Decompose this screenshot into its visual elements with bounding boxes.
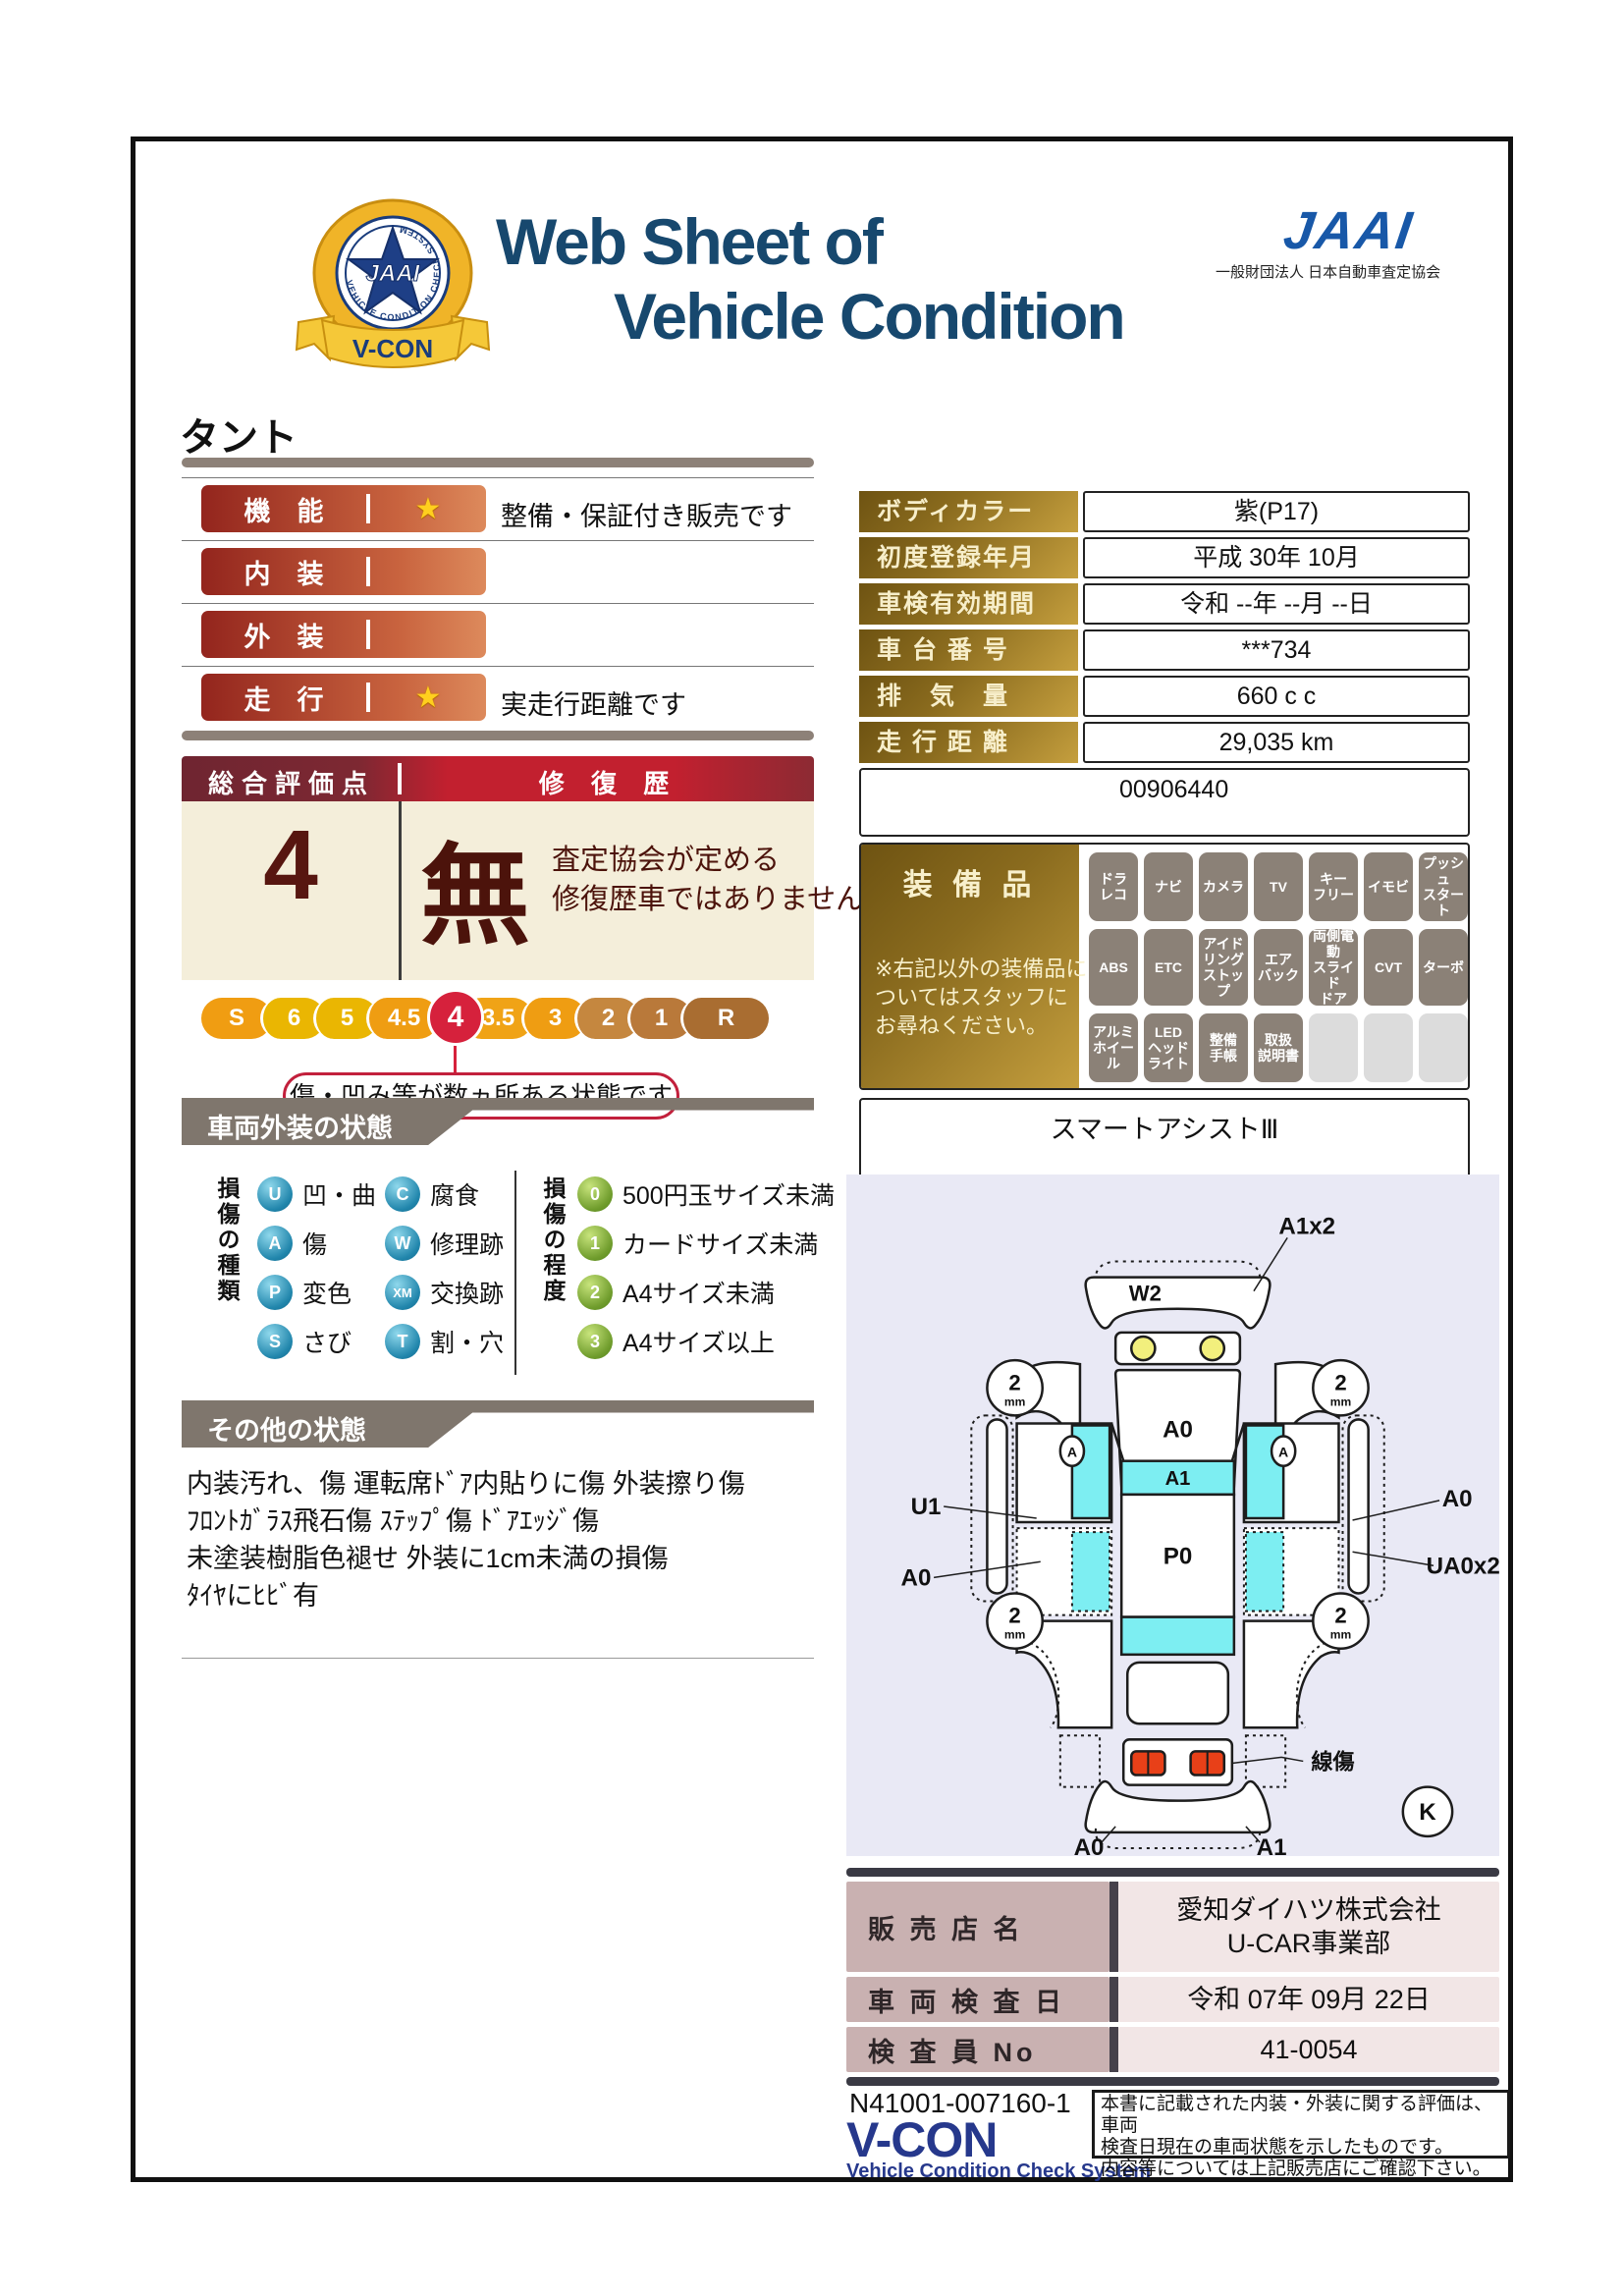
bar-divider bbox=[366, 620, 370, 649]
info-value-chassis: ***734 bbox=[1083, 629, 1470, 671]
equipment-note: ※右記以外の装備品に ついてはスタッフに お尋ねください。 bbox=[875, 955, 1087, 1040]
damage-label: 修理跡 bbox=[430, 1226, 504, 1261]
dealer-divider bbox=[1109, 1977, 1118, 2022]
rule bbox=[182, 603, 814, 604]
damage-code-u: U bbox=[257, 1176, 293, 1212]
degree-code-0: 0 bbox=[577, 1176, 613, 1212]
legend-item: A 傷 bbox=[257, 1226, 327, 1261]
damage-label: 変色 bbox=[302, 1275, 352, 1310]
rule bbox=[182, 477, 814, 478]
rule bbox=[182, 540, 814, 541]
equipment-badge: エア バック bbox=[1254, 929, 1303, 1006]
jaai-logo: JAAI bbox=[1280, 200, 1418, 261]
damage-code-t: T bbox=[385, 1324, 420, 1359]
damage-type-label: 損傷の種類 bbox=[210, 1176, 243, 1334]
smart-assist-label: スマートアシストⅢ bbox=[859, 1108, 1470, 1146]
dealer-divider bbox=[1109, 2027, 1118, 2072]
page-title-line1: Web Sheet of bbox=[496, 204, 882, 279]
vcon-emblem-icon: VEHICLE CONDITION CHECK SYSTEM JAAI V-CO… bbox=[295, 194, 491, 386]
info-label-bodycolor: ボディカラー bbox=[859, 491, 1078, 532]
wheel-gap-unit: mm bbox=[1330, 1628, 1351, 1642]
info-label-mileage: 走 行 距 離 bbox=[859, 722, 1078, 763]
legend-item: 1 カードサイズ未満 bbox=[577, 1226, 818, 1261]
equipment-badge: TV bbox=[1254, 852, 1303, 921]
damage-code-a: A bbox=[257, 1226, 293, 1261]
section-title: その他の状態 bbox=[207, 1416, 366, 1446]
wheel-gap-unit: mm bbox=[1004, 1628, 1025, 1642]
wheel-gap-value: 2 bbox=[1334, 1370, 1346, 1394]
equipment-badge: 両側電動 スライド ドア bbox=[1309, 929, 1358, 1006]
rule bbox=[182, 1658, 814, 1659]
rating-label: 機 能 bbox=[201, 490, 366, 528]
damage-diagram: A1x2 W2 A0 A1 P0 U1 A0 A0 UA0x2 線傷 A0 A1… bbox=[846, 1175, 1499, 1856]
equipment-badge: カメラ bbox=[1199, 852, 1248, 921]
damage-code-p: P bbox=[257, 1275, 293, 1310]
legend-item: P 変色 bbox=[257, 1275, 352, 1310]
wheel-gap-unit: mm bbox=[1004, 1394, 1025, 1408]
disclaimer-box: 本書に記載された内装・外装に関する評価は、車両 検査日現在の車両状態を示したもの… bbox=[1092, 2090, 1510, 2159]
grade-pill-r: R bbox=[680, 998, 769, 1039]
label-bumper-a0: A0 bbox=[1074, 1834, 1105, 1856]
bar-divider bbox=[366, 557, 370, 586]
legend-item: 3 A4サイズ以上 bbox=[577, 1324, 775, 1359]
info-value-mileage: 29,035 km bbox=[1083, 722, 1470, 763]
repair-history-title: 修 復 歴 bbox=[491, 764, 727, 800]
repair-history-value: 無 bbox=[420, 807, 530, 966]
dealer-name-label: 販 売 店 名 bbox=[846, 1882, 1109, 1972]
rating-note: 実走行距離です bbox=[501, 683, 686, 722]
equipment-badge: CVT bbox=[1364, 929, 1413, 1006]
equipment-badge-empty bbox=[1364, 1013, 1413, 1082]
equipment-badge: ナビ bbox=[1144, 852, 1193, 921]
degree-code-3: 3 bbox=[577, 1324, 613, 1359]
star-icon: ★ bbox=[370, 492, 486, 526]
info-value-firstreg: 平成 30年 10月 bbox=[1083, 537, 1470, 578]
body-divider bbox=[399, 801, 402, 980]
grade-pill-4-selected: 4 bbox=[427, 989, 484, 1046]
degree-label: A4サイズ未満 bbox=[622, 1275, 775, 1310]
vehicle-name: タント bbox=[180, 406, 298, 463]
equipment-badge-empty bbox=[1419, 1013, 1468, 1082]
equipment-badge: ETC bbox=[1144, 929, 1193, 1006]
legend-divider bbox=[514, 1171, 516, 1375]
dealer-table-top-bar bbox=[846, 1868, 1499, 1877]
label-windshield-a1: A1 bbox=[1165, 1468, 1191, 1490]
label-roof-p0: P0 bbox=[1163, 1543, 1193, 1569]
equipment-badge-empty bbox=[1309, 1013, 1358, 1082]
rating-note: 整備・保証付き販売です bbox=[501, 495, 792, 533]
rating-bar-interior: 内 装 bbox=[201, 548, 486, 595]
rating-label: 外 装 bbox=[201, 616, 366, 654]
rating-label: 内 装 bbox=[201, 553, 366, 591]
legend-item: T 割・穴 bbox=[385, 1324, 504, 1359]
callout-stem bbox=[454, 1043, 457, 1074]
inspector-no-value: 41-0054 bbox=[1118, 2027, 1499, 2072]
inspection-date-value: 令和 07年 09月 22日 bbox=[1118, 1977, 1499, 2022]
equipment-badge: イモビ bbox=[1364, 852, 1413, 921]
rule bbox=[182, 666, 814, 667]
jaai-subtitle: 一般財団法人 日本自動車査定協会 bbox=[1216, 261, 1440, 282]
equipment-badge: キー フリー bbox=[1309, 852, 1358, 921]
legend-item: XM 交換跡 bbox=[385, 1275, 504, 1310]
degree-label: カードサイズ未満 bbox=[622, 1226, 818, 1261]
svg-text:V-CON: V-CON bbox=[352, 334, 433, 363]
grade-scale: S 6 5 4.5 4 3.5 3 2 1 R bbox=[201, 998, 810, 1057]
overall-score-value: 4 bbox=[182, 809, 400, 922]
damage-label: 腐食 bbox=[430, 1176, 479, 1212]
info-label-inspection: 車検有効期間 bbox=[859, 583, 1078, 625]
damage-label: さび bbox=[302, 1324, 352, 1359]
damage-code-c: C bbox=[385, 1176, 420, 1212]
legend-item: 0 500円玉サイズ未満 bbox=[577, 1176, 835, 1212]
dealer-name-value: 愛知ダイハツ株式会社 U-CAR事業部 bbox=[1118, 1882, 1499, 1972]
degree-label: 500円玉サイズ未満 bbox=[622, 1176, 835, 1212]
vehicle-condition-sheet: VEHICLE CONDITION CHECK SYSTEM JAAI V-CO… bbox=[0, 0, 1623, 2296]
equipment-title: 装 備 品 bbox=[861, 860, 1079, 903]
equipment-grid: ドラ レコ ナビ カメラ TV キー フリー イモビ プッシュ スタート ABS… bbox=[1087, 845, 1470, 1088]
overall-score-title: 総合評価点 bbox=[208, 764, 375, 800]
label-bumper-a1: A1 bbox=[1257, 1834, 1287, 1856]
label-w2: W2 bbox=[1129, 1282, 1162, 1306]
rating-label: 走 行 bbox=[201, 679, 366, 717]
equipment-badge: アルミ ホイール bbox=[1089, 1013, 1138, 1082]
info-label-chassis: 車 台 番 号 bbox=[859, 629, 1078, 671]
info-value-bodycolor: 紫(P17) bbox=[1083, 491, 1470, 532]
repair-history-note: 査定協会が定める 修復歴車ではありません bbox=[552, 841, 864, 919]
equipment-badge: ドラ レコ bbox=[1089, 852, 1138, 921]
label-ua0x2: UA0x2 bbox=[1427, 1553, 1499, 1579]
star-icon: ★ bbox=[370, 681, 486, 715]
divider-top bbox=[182, 458, 814, 467]
svg-text:JAAI: JAAI bbox=[366, 260, 421, 287]
equipment-badge: ABS bbox=[1089, 929, 1138, 1006]
page-title-line2: Vehicle Condition bbox=[614, 279, 1124, 354]
dealer-table-bottom-bar bbox=[846, 2077, 1499, 2086]
damage-label: 凹・曲 bbox=[302, 1176, 376, 1212]
equipment-badge: 整備 手帳 bbox=[1199, 1013, 1248, 1082]
equipment-badge: 取扱 説明書 bbox=[1254, 1013, 1303, 1082]
degree-label: A4サイズ以上 bbox=[622, 1324, 775, 1359]
section-title: 車両外装の状態 bbox=[207, 1114, 393, 1143]
label-left-a0: A0 bbox=[901, 1564, 932, 1591]
damage-label: 交換跡 bbox=[430, 1275, 504, 1310]
legend-item: S さび bbox=[257, 1324, 352, 1359]
wheel-gap-value: 2 bbox=[1334, 1604, 1346, 1628]
rating-bar-function: 機 能 ★ bbox=[201, 485, 486, 532]
label-a-marker: A bbox=[1278, 1445, 1288, 1460]
header-divider bbox=[398, 763, 402, 794]
info-value-inspection: 令和 --年 --月 --日 bbox=[1083, 583, 1470, 625]
label-a1x2: A1x2 bbox=[1278, 1213, 1335, 1239]
label-right-a0: A0 bbox=[1442, 1486, 1473, 1512]
rating-bar-mileage: 走 行 ★ bbox=[201, 674, 486, 721]
wheel-gap-value: 2 bbox=[1008, 1370, 1020, 1394]
other-state-text: 内装汚れ、傷 運転席ﾄﾞｱ内貼りに傷 外装擦り傷 ﾌﾛﾝﾄｶﾞﾗｽ飛石傷 ｽﾃｯ… bbox=[187, 1465, 745, 1614]
dealer-divider bbox=[1109, 1882, 1118, 1972]
equipment-badge: プッシュ スタート bbox=[1419, 852, 1468, 921]
damage-code-xm: XM bbox=[385, 1275, 420, 1310]
label-line-scratch: 線傷 bbox=[1311, 1749, 1354, 1774]
damage-label: 傷 bbox=[302, 1226, 327, 1261]
equipment-badge: アイド リング ストップ bbox=[1199, 929, 1248, 1006]
legend-item: U 凹・曲 bbox=[257, 1176, 376, 1212]
damage-label: 割・穴 bbox=[430, 1324, 504, 1359]
degree-code-1: 1 bbox=[577, 1226, 613, 1261]
wheel-gap-unit: mm bbox=[1330, 1394, 1351, 1408]
legend-item: C 腐食 bbox=[385, 1176, 479, 1212]
divider-mid bbox=[182, 731, 814, 740]
inspector-no-label: 検 査 員 No bbox=[846, 2027, 1109, 2072]
damage-degree-label: 損傷の程度 bbox=[536, 1176, 569, 1334]
damage-code-w: W bbox=[385, 1226, 420, 1261]
label-a-marker: A bbox=[1067, 1445, 1077, 1460]
equipment-box: 装 備 品 ※右記以外の装備品に ついてはスタッフに お尋ねください。 ドラ レ… bbox=[859, 843, 1470, 1090]
info-value-displacement: 660 c c bbox=[1083, 676, 1470, 717]
equipment-badge: ターボ bbox=[1419, 929, 1468, 1006]
degree-code-2: 2 bbox=[577, 1275, 613, 1310]
rating-bar-exterior: 外 装 bbox=[201, 611, 486, 658]
id-number: 00906440 bbox=[1119, 776, 1228, 804]
car-diagram-icon: A1x2 W2 A0 A1 P0 U1 A0 A0 UA0x2 線傷 A0 A1… bbox=[846, 1175, 1499, 1856]
legend-item: W 修理跡 bbox=[385, 1226, 504, 1261]
equipment-badge: LED ヘッド ライト bbox=[1144, 1013, 1193, 1082]
label-u1: U1 bbox=[911, 1494, 942, 1520]
damage-code-s: S bbox=[257, 1324, 293, 1359]
wheel-gap-value: 2 bbox=[1008, 1604, 1020, 1628]
inspection-date-label: 車 両 検 査 日 bbox=[846, 1977, 1109, 2022]
label-k: K bbox=[1419, 1799, 1436, 1826]
info-label-displacement: 排 気 量 bbox=[859, 676, 1078, 717]
legend-item: 2 A4サイズ未満 bbox=[577, 1275, 775, 1310]
label-hood-a0: A0 bbox=[1163, 1417, 1193, 1444]
info-label-firstreg: 初度登録年月 bbox=[859, 537, 1078, 578]
